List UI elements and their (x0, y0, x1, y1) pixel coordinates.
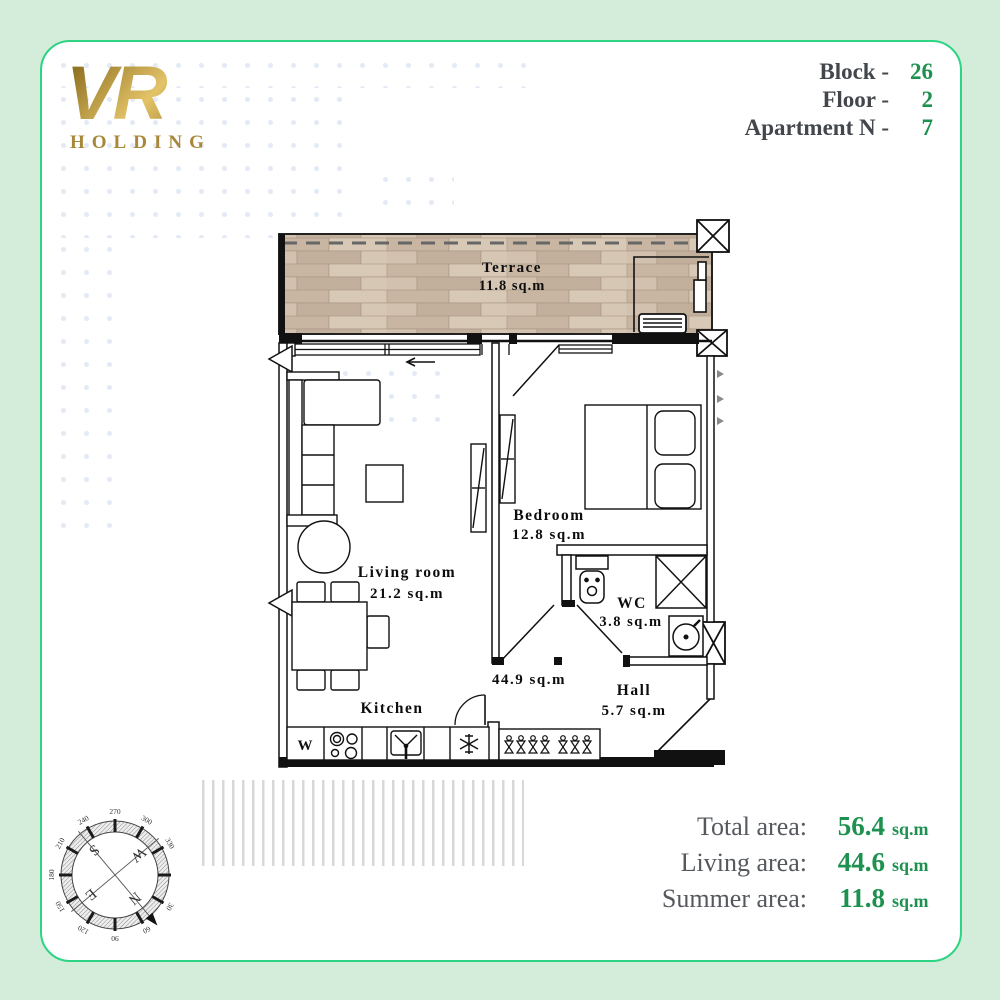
area-summary: Total area: 56.4 sq.m Living area: 44.6 … (662, 810, 933, 918)
living-furniture (287, 372, 515, 690)
degree-label: 90 (111, 934, 119, 943)
degree-label: 120 (76, 923, 90, 937)
kitchen-counter: W (287, 727, 489, 760)
brand-logo-sub: HOLDING (66, 132, 266, 154)
summer-area-unit: sq.m (885, 885, 933, 918)
washbasin-icon (669, 616, 703, 656)
floor-plan: Terrace 11.8 sq.m (267, 212, 742, 782)
total-area-unit: sq.m (885, 813, 933, 846)
bed (585, 405, 701, 509)
total-area-value: 56.4 (821, 810, 885, 843)
page: VR HOLDING Block - 26 Floor - 2 Apartmen… (0, 0, 1000, 1000)
info-row-block: Block - 26 (745, 58, 933, 86)
degree-label: 30 (164, 901, 176, 912)
column-marker (697, 220, 729, 252)
terrace-label: Terrace (482, 260, 542, 276)
bedroom-door (499, 605, 554, 663)
hall-area: 5.7 sq.m (602, 703, 667, 719)
ac-unit-icon (639, 314, 686, 333)
dots-pattern (52, 238, 114, 538)
hall-label: Hall (617, 682, 651, 699)
column-marker (697, 330, 727, 356)
living-room-area: 21.2 sq.m (370, 586, 444, 602)
wc-area: 3.8 sq.m (599, 614, 662, 630)
block-value: 26 (889, 58, 933, 86)
dining-table (292, 602, 367, 670)
washer-label: W (298, 738, 313, 754)
living-window (287, 343, 480, 356)
living-area-row: Living area: 44.6 sq.m (662, 846, 933, 882)
shower-icon (656, 556, 706, 608)
compass-rose: 30 60 90 120 150 180 210 240 270 300 330… (42, 802, 192, 952)
summer-area-row: Summer area: 11.8 sq.m (662, 882, 933, 918)
living-area-value: 44.6 (821, 846, 885, 879)
wc-label: WC (617, 595, 647, 612)
degree-label: 150 (53, 899, 67, 913)
terrace-area: 11.8 sq.m (479, 278, 546, 294)
terrace-zone: Terrace 11.8 sq.m (279, 234, 712, 334)
wardrobe (471, 444, 486, 532)
wall-ticks (717, 370, 724, 425)
living-area-label: Living area: (681, 846, 821, 879)
sofa (287, 372, 380, 526)
bedroom-window (559, 345, 612, 353)
summer-area-value: 11.8 (821, 882, 885, 915)
summer-area-label: Summer area: (662, 882, 821, 915)
pillow (655, 411, 695, 455)
info-row-apartment: Apartment N - 7 (745, 114, 933, 142)
pillow (655, 464, 695, 508)
sink-icon (391, 731, 421, 759)
bedroom-label: Bedroom (513, 507, 584, 524)
apartment-value: 7 (889, 114, 933, 142)
kitchen-label: Kitchen (360, 700, 423, 717)
compass-s: S (85, 841, 102, 859)
brand-logo: VR HOLDING (66, 56, 266, 154)
apartment-info: Block - 26 Floor - 2 Apartment N - 7 (745, 58, 933, 142)
room-labels: Living room 21.2 sq.m Bedroom 12.8 sq.m … (358, 507, 667, 719)
compass-n: N (125, 888, 144, 907)
total-area-row: Total area: 56.4 sq.m (662, 810, 933, 846)
apartment-label: Apartment N - (745, 114, 889, 142)
living-room-label: Living room (358, 564, 456, 581)
degree-label: 300 (140, 813, 154, 827)
toilet-icon (576, 556, 608, 603)
flyer-card: VR HOLDING Block - 26 Floor - 2 Apartmen… (40, 40, 962, 962)
degree-label: 240 (76, 813, 90, 827)
round-pouf (298, 521, 350, 573)
brand-logo-vr: VR (66, 56, 266, 132)
degree-label: 210 (53, 836, 67, 850)
hatch-lines-decoration (202, 780, 524, 866)
block-label: Block - (819, 58, 889, 86)
wardrobe (500, 415, 515, 503)
kitchen-door (455, 695, 485, 725)
info-row-floor: Floor - 2 (745, 86, 933, 114)
degree-label: 270 (109, 807, 121, 816)
coffee-table (366, 465, 403, 502)
degree-label: 330 (163, 836, 177, 850)
inner-area-label: 44.9 sq.m (492, 672, 566, 688)
degree-label: 180 (47, 869, 56, 881)
degree-label: 60 (141, 924, 152, 936)
bedroom-terrace-door (513, 345, 559, 396)
hanger-rack (499, 729, 600, 760)
floor-label: Floor - (822, 86, 889, 114)
bedroom-area: 12.8 sq.m (512, 527, 586, 543)
living-area-unit: sq.m (885, 849, 933, 882)
total-area-label: Total area: (697, 810, 821, 843)
bedroom-furniture (585, 405, 701, 509)
floor-value: 2 (889, 86, 933, 114)
